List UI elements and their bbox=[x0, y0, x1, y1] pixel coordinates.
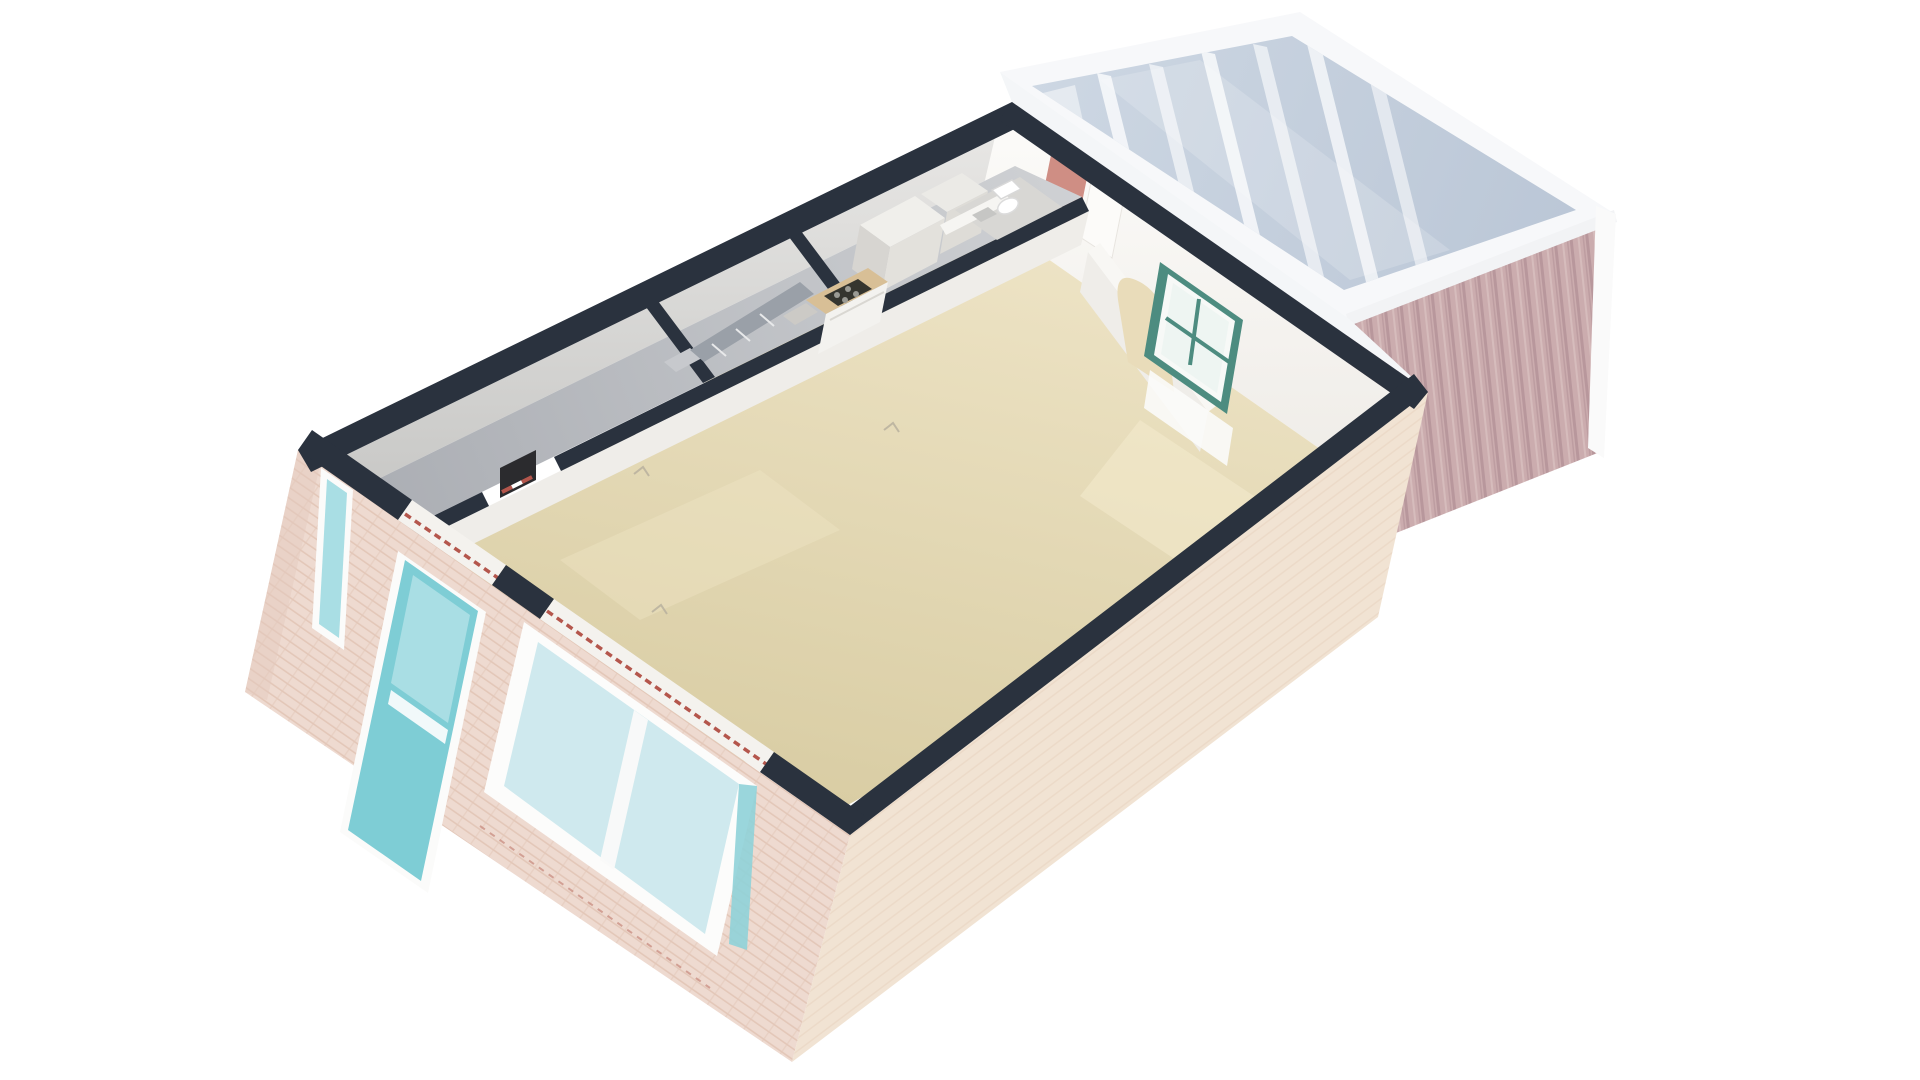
stove-burner bbox=[842, 297, 848, 303]
page: { "meta": { "title": "3D floor plan — gr… bbox=[0, 0, 1920, 1080]
stove-burner bbox=[845, 286, 851, 292]
floorplan-3d-render: 3D floor plan — ground floor cutaway ren… bbox=[0, 0, 1920, 1080]
stove-burner bbox=[834, 292, 840, 298]
floorplan-canvas: 3D floor plan — ground floor cutaway ren… bbox=[0, 0, 1920, 1080]
stove-burner bbox=[853, 291, 859, 297]
